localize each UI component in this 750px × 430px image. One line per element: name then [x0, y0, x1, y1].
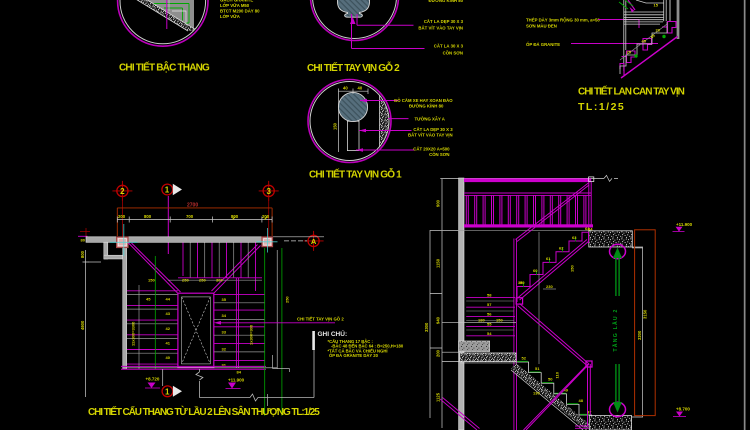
- svg-text:ĐƯỜNG KÍNH 80: ĐƯỜNG KÍNH 80: [409, 104, 444, 109]
- svg-text:LỚP VỮA: LỚP VỮA: [220, 14, 240, 19]
- svg-text:34: 34: [222, 313, 227, 318]
- svg-text:41: 41: [166, 341, 171, 346]
- svg-text:1: 1: [165, 186, 170, 195]
- svg-text:35: 35: [222, 297, 227, 302]
- svg-text:40: 40: [343, 86, 348, 91]
- svg-text:57: 57: [487, 302, 492, 307]
- svg-text:4600: 4600: [80, 320, 85, 330]
- svg-text:1x300=300: 1x300=300: [249, 324, 254, 345]
- svg-text:BẮT VÍT VÀO TAY VỊN: BẮT VÍT VÀO TAY VỊN: [408, 133, 453, 138]
- svg-text:GỖ CĂM XE HAY XOAN ĐÀO: GỖ CĂM XE HAY XOAN ĐÀO: [394, 98, 453, 103]
- svg-text:300: 300: [216, 278, 223, 283]
- svg-text:THÉP DÀY 3mm RỘNG 30 mm, a=50: THÉP DÀY 3mm RỘNG 30 mm, a=50: [526, 18, 600, 23]
- svg-text:ỐP ĐÁ GRANITE: ỐP ĐÁ GRANITE: [526, 42, 560, 47]
- svg-text:CẮT 20X20 A=500: CẮT 20X20 A=500: [413, 147, 450, 152]
- svg-text:3200: 3200: [637, 330, 642, 340]
- svg-text:800: 800: [80, 250, 85, 258]
- svg-text:56: 56: [487, 312, 492, 317]
- svg-text:32: 32: [222, 347, 227, 352]
- svg-text:150: 150: [570, 265, 575, 272]
- svg-text:A: A: [311, 237, 317, 246]
- svg-text:200: 200: [436, 349, 441, 357]
- svg-text:+11.900: +11.900: [676, 222, 693, 227]
- svg-text:40: 40: [358, 86, 363, 91]
- svg-text:84: 84: [237, 370, 242, 375]
- svg-text:TƯỜNG XÂY A: TƯỜNG XÂY A: [415, 117, 445, 122]
- svg-text:CHI TIẾT CẤU THANG TỪ LẦU 2 LÊ: CHI TIẾT CẤU THANG TỪ LẦU 2 LÊN SÂN THƯỢ…: [88, 405, 320, 418]
- svg-text:63: 63: [572, 235, 577, 240]
- svg-text:80: 80: [81, 238, 86, 243]
- svg-text:60: 60: [533, 268, 538, 273]
- svg-text:54: 54: [487, 331, 492, 336]
- svg-text:180: 180: [478, 317, 485, 322]
- svg-text:TL:1/25: TL:1/25: [578, 101, 625, 113]
- svg-text:250: 250: [182, 278, 189, 283]
- svg-text:3150: 3150: [642, 309, 647, 319]
- svg-text:1125: 1125: [436, 392, 441, 402]
- svg-text:52: 52: [522, 356, 527, 361]
- svg-text:42: 42: [166, 326, 171, 331]
- svg-text:2: 2: [120, 187, 125, 196]
- svg-text:150: 150: [148, 278, 155, 283]
- svg-text:11x300=3300: 11x300=3300: [131, 321, 136, 346]
- svg-text:36: 36: [518, 280, 523, 285]
- svg-text:150: 150: [333, 122, 338, 130]
- svg-text:ỐP ĐÁ GRANITE DÀY 20: ỐP ĐÁ GRANITE DÀY 20: [329, 353, 379, 358]
- svg-text:48: 48: [579, 398, 584, 403]
- svg-text:25: 25: [627, 50, 632, 55]
- svg-text:900: 900: [436, 199, 441, 207]
- svg-text:BTCT M200 DÀY 80: BTCT M200 DÀY 80: [220, 9, 260, 14]
- svg-text:61: 61: [546, 256, 551, 261]
- svg-text:26: 26: [656, 28, 661, 33]
- svg-text:CẮT LA DẸP 30 X 3: CẮT LA DẸP 30 X 3: [413, 127, 453, 132]
- svg-text:CỒN SƠN: CỒN SƠN: [443, 51, 463, 56]
- svg-text:110: 110: [555, 371, 560, 378]
- svg-text:+8.700: +8.700: [676, 407, 690, 412]
- svg-text:ĐƯỜNG KÍNH 80: ĐƯỜNG KÍNH 80: [429, 0, 464, 3]
- svg-text:150: 150: [496, 317, 503, 322]
- svg-text:1150: 1150: [436, 258, 441, 268]
- svg-text:SƠN MÀU ĐEN: SƠN MÀU ĐEN: [526, 24, 557, 29]
- svg-text:58: 58: [487, 292, 492, 297]
- svg-text:3300: 3300: [424, 322, 429, 332]
- svg-text:LỚP VỮA M50: LỚP VỮA M50: [220, 3, 250, 8]
- svg-text:GHI CHÚ:: GHI CHÚ:: [318, 329, 348, 338]
- svg-text:+11.900: +11.900: [228, 378, 245, 383]
- svg-text:3: 3: [266, 187, 271, 196]
- svg-text:800: 800: [144, 214, 152, 219]
- svg-text:2700: 2700: [187, 203, 198, 209]
- svg-text:BẮT VÍT VÀO TAY VỊN: BẮT VÍT VÀO TAY VỊN: [418, 26, 463, 31]
- svg-text:CHI TIẾT TAY VỊN GỖ 2: CHI TIẾT TAY VỊN GỖ 2: [297, 317, 344, 322]
- svg-text:1: 1: [165, 387, 170, 396]
- svg-text:45: 45: [146, 297, 151, 302]
- svg-text:CHI TIẾT BẬC THANG: CHI TIẾT BẬC THANG: [119, 61, 210, 74]
- svg-text:250: 250: [285, 296, 290, 303]
- svg-text:45: 45: [642, 39, 647, 44]
- svg-text:230: 230: [546, 284, 553, 289]
- svg-text:CHI TIẾT TAY VỊN GỖ 1: CHI TIẾT TAY VỊN GỖ 1: [309, 168, 402, 181]
- svg-text:51: 51: [535, 366, 540, 371]
- svg-text:15: 15: [654, 3, 659, 8]
- svg-text:CỒN SƠN: CỒN SƠN: [429, 152, 449, 157]
- svg-text:44: 44: [166, 297, 171, 302]
- svg-text:64: 64: [585, 226, 590, 231]
- svg-text:+8.720: +8.720: [146, 377, 160, 382]
- svg-text:TẦNG LẦU 2: TẦNG LẦU 2: [612, 308, 619, 351]
- svg-text:CẮT LA 30 X 3: CẮT LA 30 X 3: [434, 44, 464, 49]
- svg-text:250: 250: [199, 278, 206, 283]
- svg-text:130: 130: [533, 391, 540, 396]
- svg-text:43: 43: [166, 311, 171, 316]
- svg-text:700: 700: [186, 214, 194, 219]
- svg-text:50: 50: [548, 377, 553, 382]
- svg-text:CẮT LA DẸP 30 X 3: CẮT LA DẸP 30 X 3: [424, 19, 464, 24]
- svg-text:40: 40: [166, 355, 171, 360]
- svg-text:CHI TIẾT LAN CAN TAY VỊN: CHI TIẾT LAN CAN TAY VỊN: [578, 85, 685, 98]
- svg-text:33: 33: [222, 330, 227, 335]
- svg-text:940: 940: [436, 316, 441, 324]
- svg-text:62: 62: [559, 246, 564, 251]
- svg-text:CHI TIẾT TAY VỊN GỖ 2: CHI TIẾT TAY VỊN GỖ 2: [307, 61, 400, 74]
- svg-text:200: 200: [118, 214, 126, 219]
